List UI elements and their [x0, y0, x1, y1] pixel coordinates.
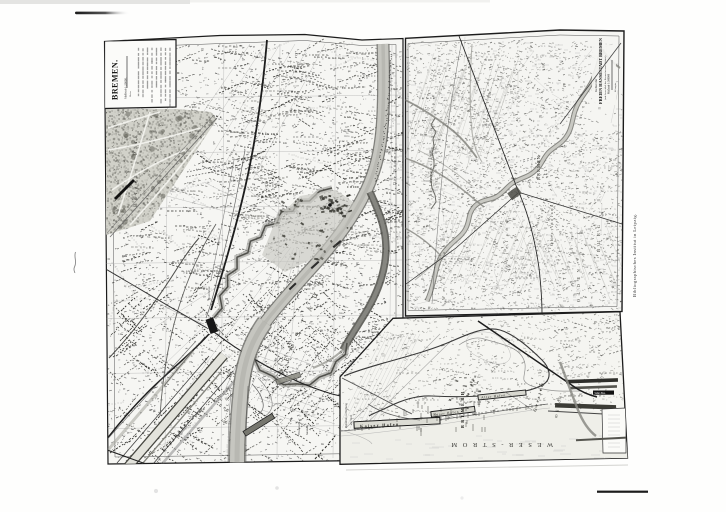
svg-text:Ober Vieland: Ober Vieland — [549, 203, 554, 246]
svg-text:Park: Park — [133, 132, 139, 155]
svg-text:alte Werft: alte Werft — [350, 415, 353, 425]
svg-text:BREMEN.: BREMEN. — [111, 59, 120, 100]
svg-text:Doventhor: Doventhor — [207, 285, 211, 300]
svg-text:O L D E N: O L D E N — [576, 268, 581, 302]
svg-text:Suhrs Bes.: Suhrs Bes. — [595, 392, 606, 395]
svg-text:hausen: hausen — [305, 425, 309, 435]
svg-text:W: W — [608, 156, 613, 162]
svg-text:V i e l a n d: V i e l a n d — [504, 219, 509, 262]
svg-text:H o l l e r l a n d: H o l l e r l a n d — [485, 80, 490, 142]
svg-text:BREMERH.: BREMERH. — [460, 386, 465, 428]
svg-text:Bibliographisches Institut in: Bibliographisches Institut in Leipzig. — [632, 213, 637, 297]
svg-text:B l o c k l a n d: B l o c k l a n d — [467, 58, 471, 112]
svg-text:Kilometer: Kilometer — [615, 82, 617, 92]
svg-text:Meter: Meter — [129, 91, 132, 97]
svg-text:F: F — [108, 367, 110, 371]
svg-text:St.Jürgensland: St.Jürgensland — [429, 149, 433, 196]
svg-text:W e r d e r l a n d: W e r d e r l a n d — [441, 237, 446, 300]
svg-text:BREMEN: BREMEN — [536, 155, 541, 180]
svg-text:Woltmers: Woltmers — [297, 421, 301, 435]
svg-text:Bürger: Bürger — [133, 173, 139, 207]
svg-text:WESER-STROM: WESER-STROM — [446, 441, 553, 448]
svg-text:E: E — [108, 312, 110, 316]
svg-text:Die Wümme: Die Wümme — [392, 151, 397, 185]
svg-text:Bahnhofs u.Drehung: Bahnhofs u.Drehung — [344, 403, 348, 428]
svg-text:Maßstab 1:300000: Maßstab 1:300000 — [608, 73, 611, 94]
svg-text:B U R G: B U R G — [596, 223, 601, 252]
